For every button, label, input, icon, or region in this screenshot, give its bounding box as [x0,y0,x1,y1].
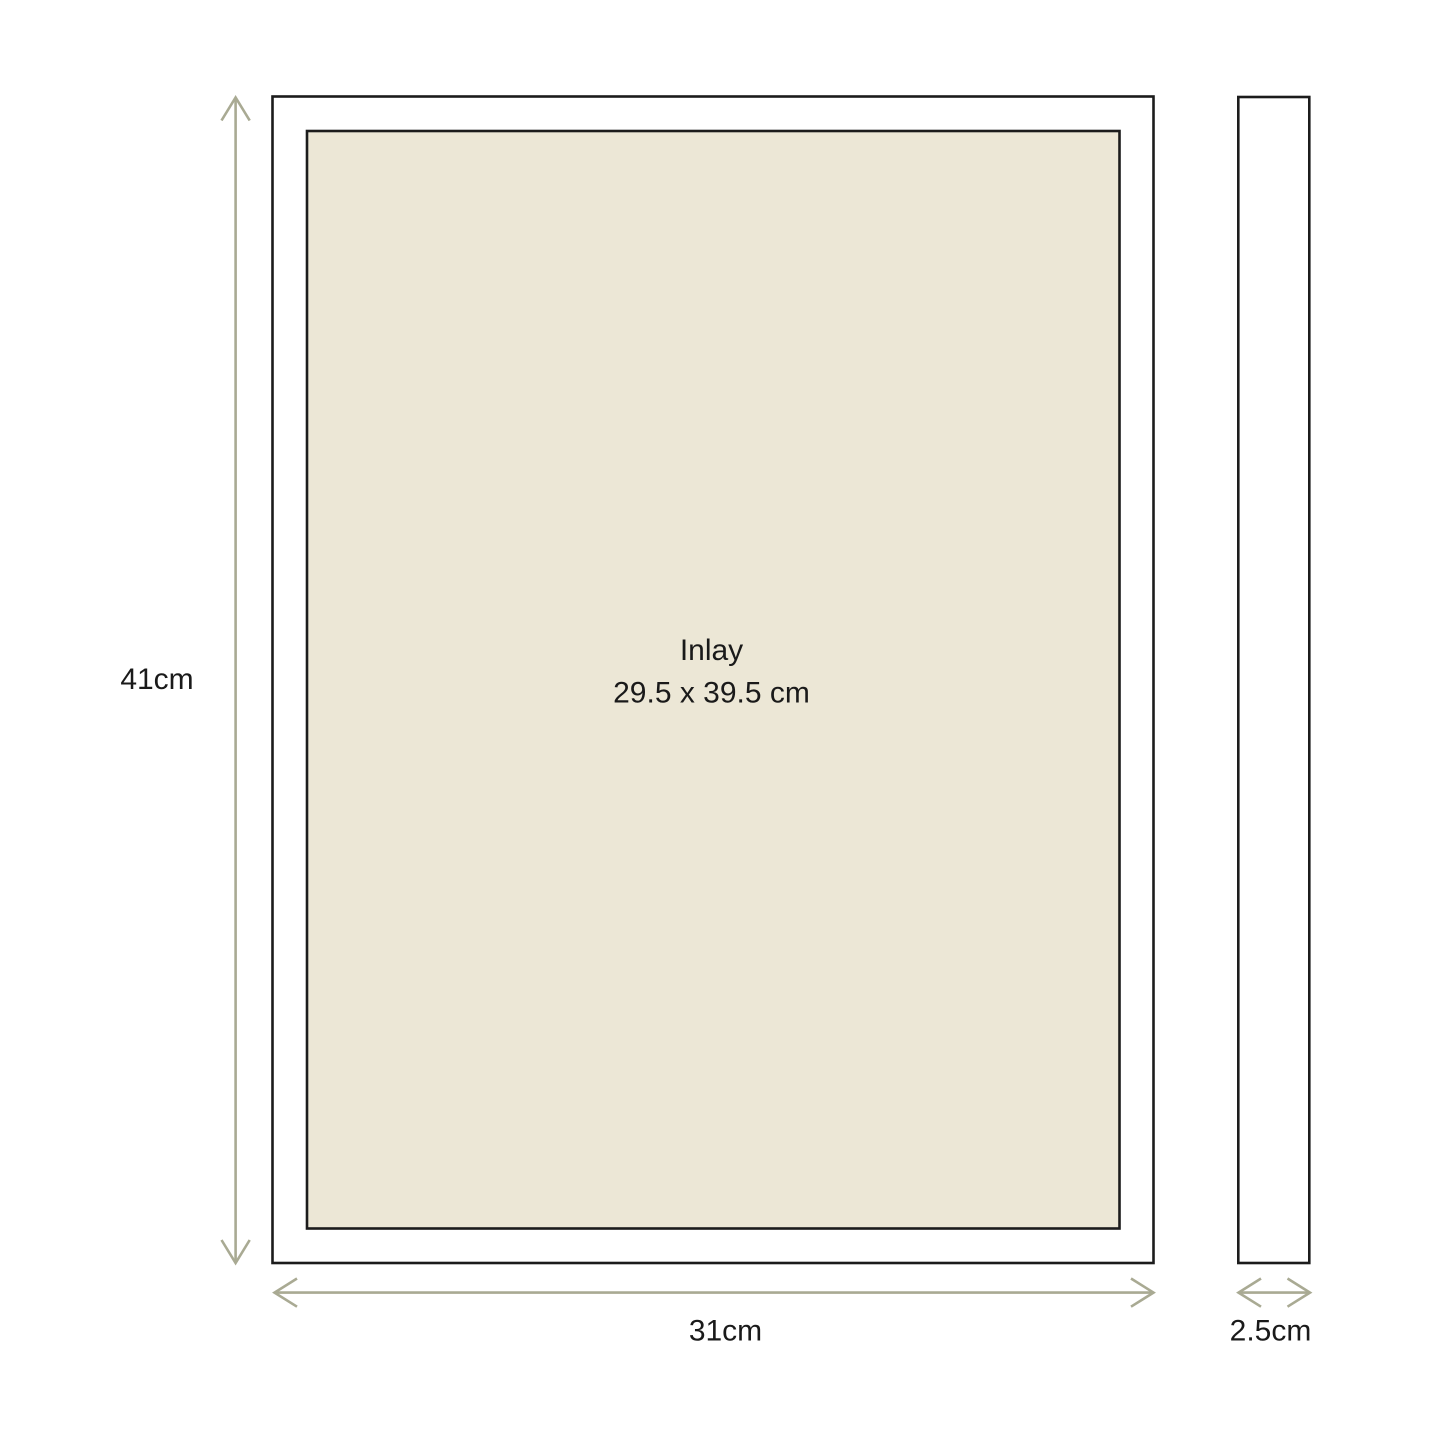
svg-text:31cm: 31cm [689,1315,762,1348]
svg-text:41cm: 41cm [120,663,193,696]
svg-text:29.5 x 39.5 cm: 29.5 x 39.5 cm [613,677,810,710]
svg-text:Inlay: Inlay [680,634,743,667]
svg-text:2.5cm: 2.5cm [1230,1315,1312,1348]
